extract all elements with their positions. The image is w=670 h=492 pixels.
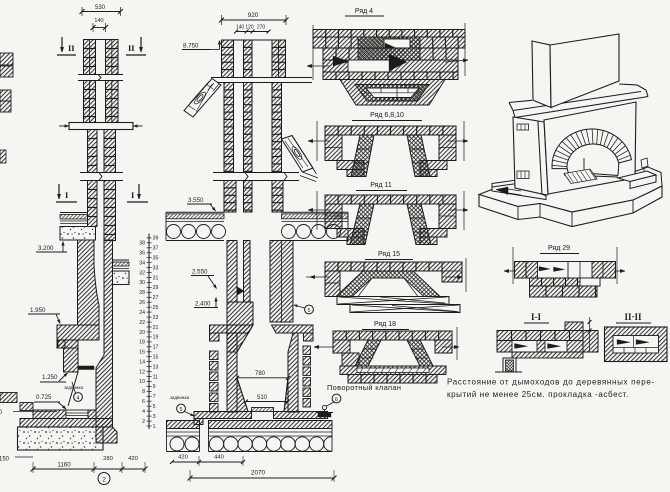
svg-text:140: 140 [94,18,103,24]
svg-text:Ряд 15: Ряд 15 [378,251,400,258]
svg-text:440: 440 [214,455,224,461]
svg-text:3.550: 3.550 [188,197,204,204]
svg-text:780: 780 [255,371,266,377]
svg-text:12: 12 [139,369,145,375]
svg-text:29: 29 [153,285,159,291]
svg-text:420: 420 [178,455,188,461]
svg-text:II: II [68,43,75,53]
svg-text:3.200: 3.200 [38,245,54,252]
svg-text:38: 38 [139,241,145,247]
svg-text:17: 17 [153,345,159,351]
svg-text:Расстояние от дымоходов до дер: Расстояние от дымоходов до деревянных пе… [447,378,655,387]
svg-text:420: 420 [128,456,138,462]
svg-text:5: 5 [308,308,311,314]
svg-text:20: 20 [139,330,145,336]
svg-text:крытий не менее 25см. прокладк: крытий не менее 25см. прокладка -асбест. [447,390,629,399]
svg-text:7: 7 [153,394,156,400]
svg-text:37: 37 [153,246,159,252]
svg-text:8.750: 8.750 [183,43,199,50]
svg-text:6: 6 [142,399,145,405]
svg-text:3: 3 [153,414,156,420]
svg-text:15: 15 [153,355,159,361]
svg-text:23: 23 [153,315,159,321]
svg-text:120: 120 [245,25,254,31]
svg-text:1.950: 1.950 [30,307,46,314]
svg-text:Поворотный клапан: Поворотный клапан [327,383,401,392]
svg-text:4: 4 [142,409,145,415]
svg-text:510: 510 [257,395,268,401]
svg-text:33: 33 [153,265,159,271]
svg-text:задвижка: задвижка [170,395,190,400]
svg-text:5: 5 [153,404,156,410]
svg-text:21: 21 [153,325,159,331]
svg-text:1: 1 [153,424,156,430]
svg-text:28: 28 [139,290,145,296]
svg-text:Ряд 29: Ряд 29 [548,245,570,252]
svg-text:4: 4 [77,395,80,401]
svg-text:Ряд 4: Ряд 4 [355,8,373,15]
svg-text:39: 39 [153,236,159,242]
svg-text:2070: 2070 [251,470,266,477]
svg-text:10: 10 [139,379,145,385]
svg-text:25: 25 [153,305,159,311]
svg-text:34: 34 [139,260,145,266]
svg-text:6: 6 [335,397,338,403]
svg-text:2: 2 [102,476,106,483]
svg-text:14: 14 [139,359,145,365]
svg-text:22: 22 [139,320,145,326]
svg-text:19: 19 [153,335,159,341]
svg-text:Ряд 11: Ряд 11 [370,182,392,189]
svg-text:11: 11 [153,374,158,380]
svg-text:II: II [128,43,135,53]
svg-text:II·II: II·II [624,312,642,322]
svg-text:8: 8 [142,389,145,395]
svg-text:0.150: 0.150 [0,457,10,463]
svg-text:5: 5 [180,407,183,413]
svg-text:2.400: 2.400 [195,301,211,308]
svg-text:2.550: 2.550 [192,269,208,276]
svg-text:9: 9 [153,384,156,390]
svg-text:270: 270 [257,25,266,31]
svg-text:13: 13 [153,364,159,370]
svg-text:26: 26 [139,300,145,306]
svg-text:27: 27 [153,295,159,301]
svg-text:1.250: 1.250 [42,374,58,381]
svg-text:280: 280 [103,456,113,462]
svg-text:16: 16 [139,350,145,356]
svg-text:24: 24 [139,310,145,316]
svg-text:18: 18 [139,340,145,346]
svg-text:31: 31 [153,275,159,281]
svg-text:0.725: 0.725 [36,394,52,401]
svg-text:30: 30 [139,280,145,286]
svg-text:35: 35 [153,256,159,262]
svg-text:I-I: I-I [531,312,541,322]
svg-text:530: 530 [95,5,106,11]
svg-text:920: 920 [248,12,259,19]
svg-text:32: 32 [139,270,145,276]
svg-text:140: 140 [236,25,245,31]
svg-text:Ряд 18: Ряд 18 [374,321,396,328]
svg-text:Ряд 6,8,10: Ряд 6,8,10 [370,112,404,119]
svg-text:2: 2 [142,419,145,425]
svg-text:36: 36 [139,251,145,257]
svg-text:1160: 1160 [57,462,71,469]
